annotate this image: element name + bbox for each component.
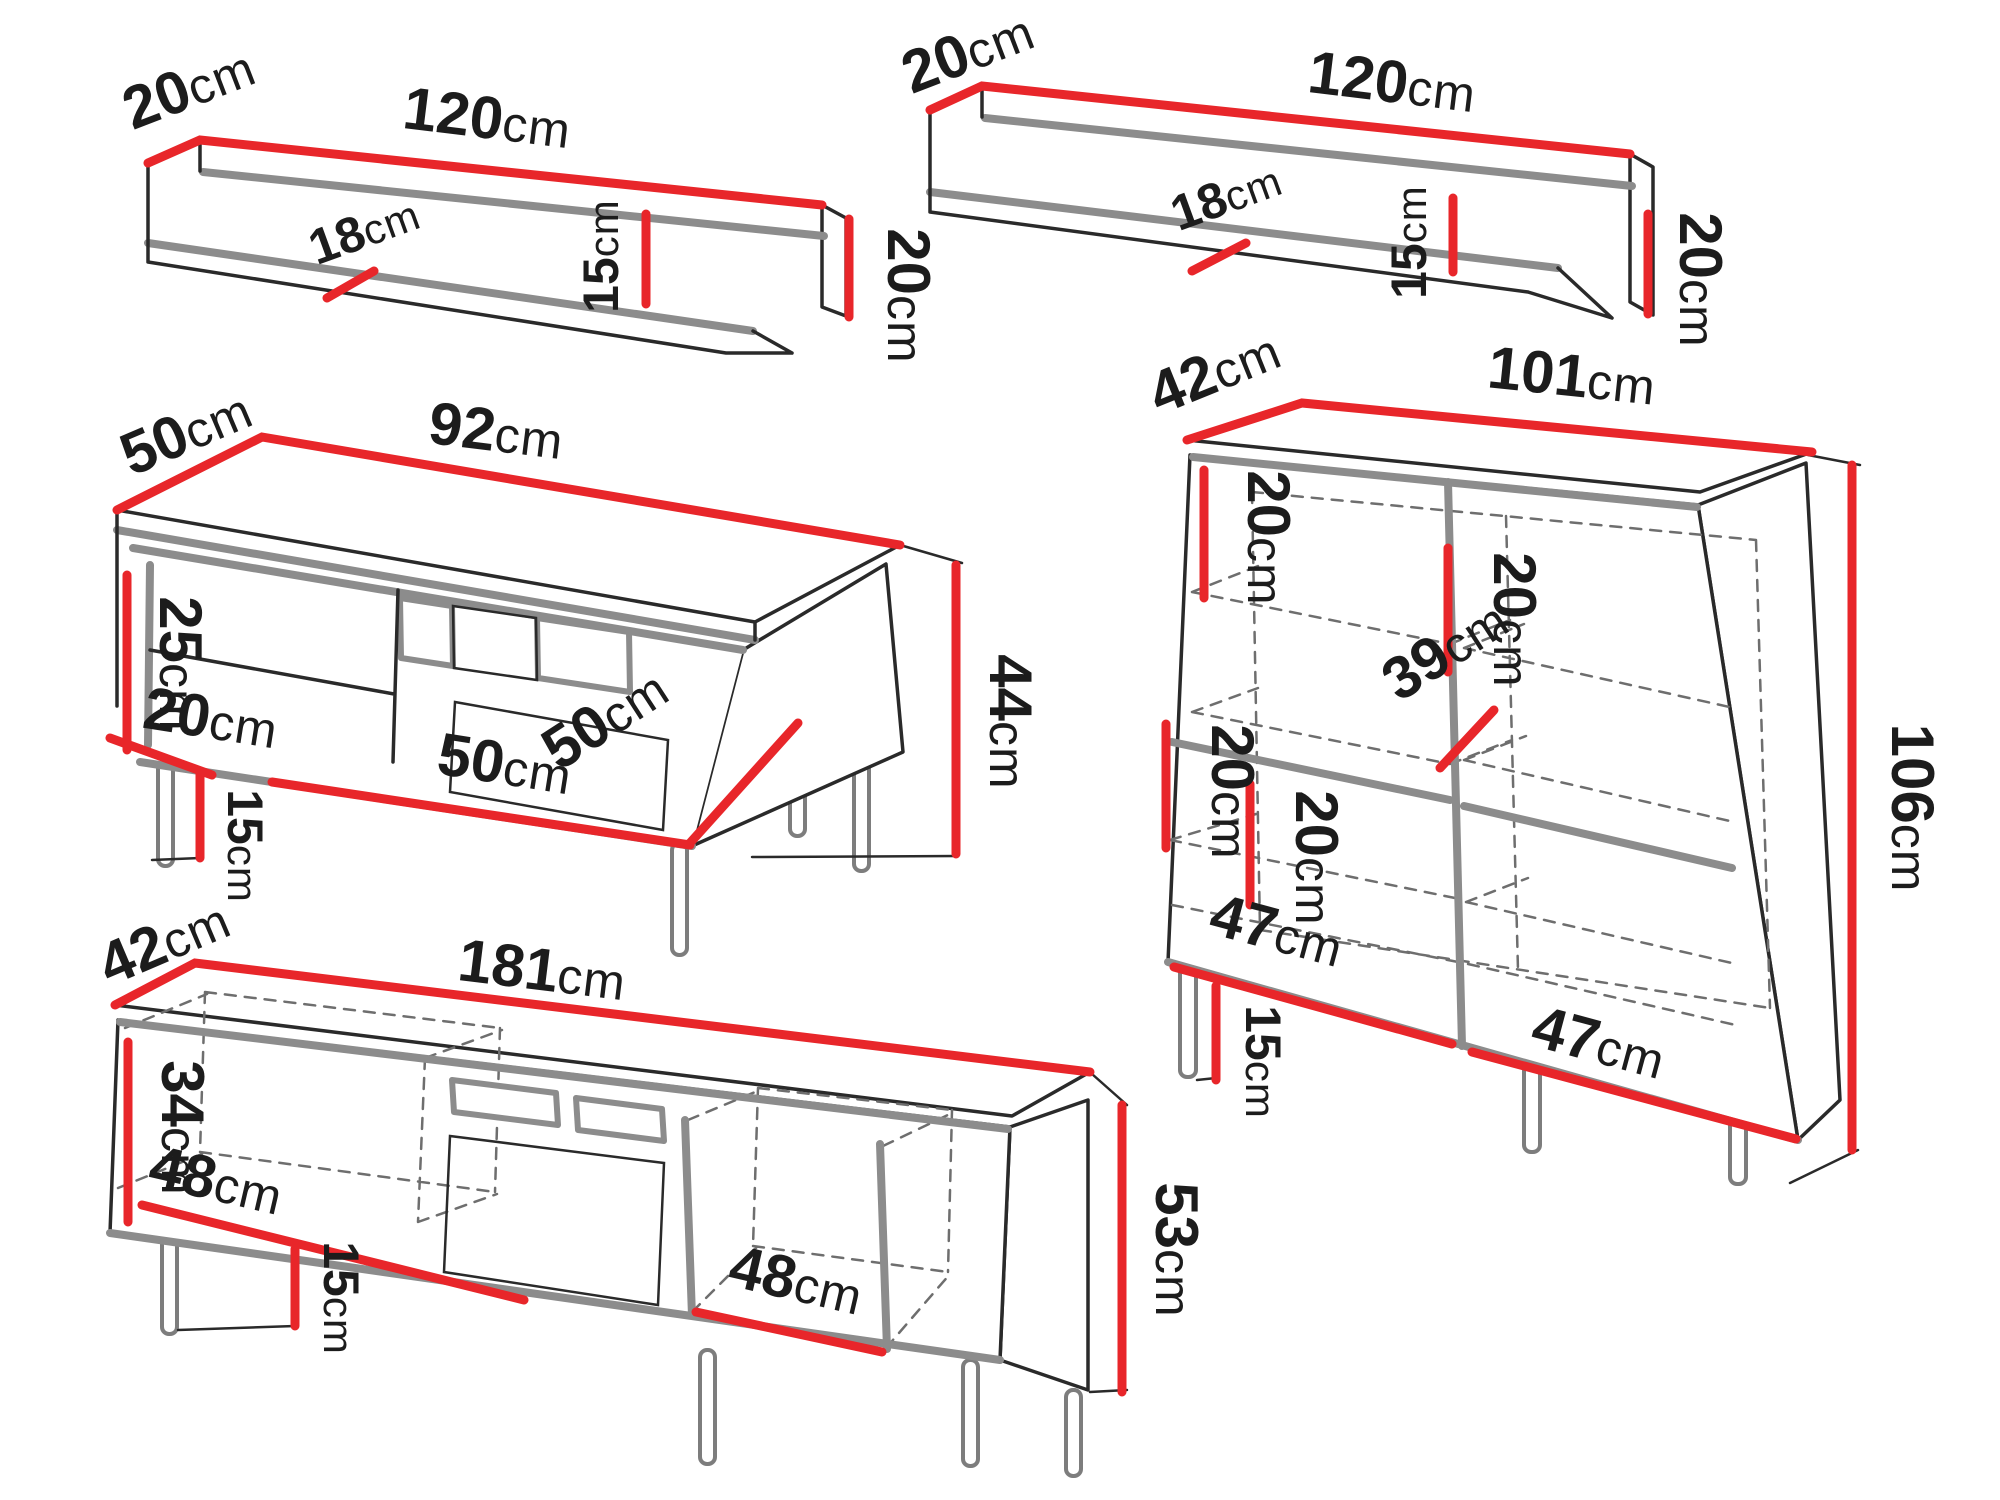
coffee-table-leg (854, 761, 869, 871)
shelf-right-inner-height-dimension: 15cm (1381, 185, 1437, 299)
tv-stand-leg (700, 1350, 715, 1464)
sideboard-shelf-gap-dimension: 20cm (1235, 470, 1302, 605)
coffee-table-leg (158, 754, 173, 866)
sideboard-leg (1524, 1064, 1540, 1152)
coffee-table-drawing: 50cm 92cm 25cm 20cm 15cm 50cm 50cm 44cm (110, 374, 1044, 955)
sideboard-leg (1180, 963, 1196, 1077)
shelf-left-width-dimension: 120cm (400, 74, 576, 161)
tv-stand-height-dimension: 53cm (1143, 1182, 1210, 1317)
wall-shelf-left-drawing: 20cm 120cm 18cm 15cm 20cm (113, 31, 942, 363)
shelf-right-height-dimension: 20cm (1667, 212, 1734, 347)
tv-stand-drawing: 42cm 181cm 34cm 48cm 15cm 48cm 53cm (89, 884, 1210, 1476)
shelf-right-width-dimension: 120cm (1305, 38, 1481, 125)
diagram-canvas: 20cm 120cm 18cm 15cm 20cm 20cm 120cm 18c… (0, 0, 2000, 1500)
coffee-table-height-dimension: 44cm (977, 654, 1044, 789)
sideboard-width-dimension: 101cm (1485, 333, 1660, 417)
sideboard-shelf-gap-dimension: 20cm (1199, 724, 1266, 859)
tv-stand-right-face (1000, 1100, 1088, 1390)
sideboard-shelf-gap-dimension: 20cm (1283, 790, 1350, 925)
furniture-dimensions-diagram: 20cm 120cm 18cm 15cm 20cm 20cm 120cm 18c… (0, 0, 2000, 1500)
shelf-left-end-cap (822, 205, 846, 316)
shelf-left-inner-depth-dimension: 18cm (301, 184, 427, 275)
tv-stand-leg (963, 1360, 978, 1466)
shelf-left-depth-dimension: 20cm (113, 31, 263, 142)
coffee-table-leg-height-dimension: 15cm (217, 789, 273, 903)
sideboard-leg-height-dimension: 15cm (1235, 1005, 1291, 1119)
sideboard-drawing: 42cm 101cm 20cm 20cm 20cm 20cm 39cm 47cm… (1139, 315, 1946, 1184)
sideboard-height-dimension: 106cm (1879, 724, 1946, 893)
coffee-table-width-dimension: 92cm (425, 389, 568, 472)
shelf-left-height-dimension: 20cm (875, 228, 942, 363)
shelf-left-inner-height-dimension: 15cm (573, 199, 629, 313)
wall-shelf-right-drawing: 20cm 120cm 18cm 15cm 20cm (892, 0, 1734, 348)
tv-stand-leg (1066, 1390, 1081, 1476)
tv-stand-leg-height-dimension: 15cm (313, 1241, 369, 1355)
coffee-table-leg (672, 843, 687, 955)
